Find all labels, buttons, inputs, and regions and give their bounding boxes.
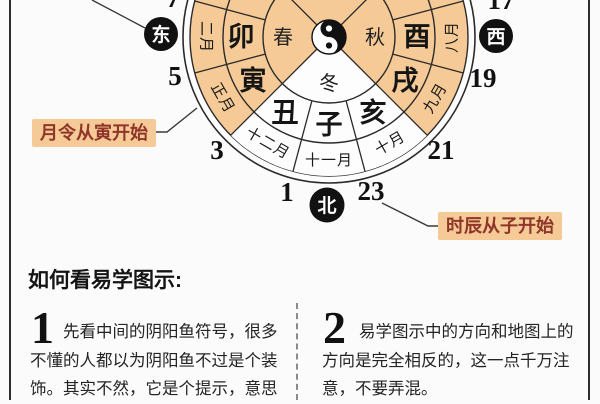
season-label-winter: 冬 <box>319 72 339 95</box>
season-label-autumn: 秋 <box>365 26 385 49</box>
branch-label-xu: 戌 <box>392 66 419 96</box>
leader-line-month-callout <box>153 108 197 132</box>
guide-heading: 如何看易学图示: <box>28 268 182 294</box>
guide-item-1-number: 1 <box>31 305 54 351</box>
guide-item-2-number: 2 <box>323 305 346 351</box>
month-label-feb: 二月 <box>198 21 214 53</box>
branch-label-hai: 亥 <box>360 97 387 128</box>
callout-month-start: 月令从寅开始 <box>32 119 156 147</box>
column-divider <box>296 303 298 400</box>
hour-label-17: 17 <box>488 0 515 15</box>
svg-text:西: 西 <box>486 27 505 48</box>
infographic-page: 春 秋 冬 卯 寅 丑 子 亥 戌 酉 二月 正月 十二月 十一月 十月 九月 … <box>0 0 600 400</box>
hour-label-1: 1 <box>280 177 294 207</box>
callout-hour-start: 时辰从子开始 <box>438 212 562 240</box>
svg-text:北: 北 <box>317 195 336 217</box>
leader-line-east <box>92 0 145 28</box>
guide-item-2: 2 易学图示中的方向和地图上的方向是完全相反的，这一点千万注意，不要弄混。 <box>322 318 575 404</box>
leader-line-hour-callout <box>382 203 438 226</box>
hour-label-23: 23 <box>358 176 385 206</box>
branch-label-chou: 丑 <box>272 98 299 128</box>
guide-item-1: 1 先看中间的阴阳鱼符号，很多不懂的人都以为阴阳鱼不过是个装饰。其实不然，它是个… <box>30 318 283 404</box>
hour-label-7: 7 <box>166 0 180 13</box>
guide-item-2-text: 易学图示中的方向和地图上的方向是完全相反的，这一点千万注意，不要弄混。 <box>322 318 575 404</box>
svg-text:东: 东 <box>151 23 170 46</box>
hour-label-3: 3 <box>210 135 224 165</box>
hour-label-19: 19 <box>470 63 497 93</box>
month-label-nov: 十一月 <box>305 152 353 169</box>
branch-label-zi: 子 <box>316 110 343 140</box>
branch-label-mao: 卯 <box>228 22 255 52</box>
direction-badge-east: 东 <box>144 17 178 51</box>
branch-label-yin: 寅 <box>240 65 267 96</box>
direction-badge-west: 西 <box>479 19 513 53</box>
direction-badge-north: 北 <box>310 188 345 223</box>
hour-label-5: 5 <box>168 61 182 91</box>
month-label-aug: 八月 <box>445 21 461 53</box>
yin-yang-icon <box>312 20 346 54</box>
branch-label-you: 酉 <box>404 22 431 52</box>
hour-label-21: 21 <box>428 135 455 165</box>
guide-item-1-text: 先看中间的阴阳鱼符号，很多不懂的人都以为阴阳鱼不过是个装饰。其实不然，它是个提示… <box>30 318 283 404</box>
season-label-spring: 春 <box>273 26 293 49</box>
